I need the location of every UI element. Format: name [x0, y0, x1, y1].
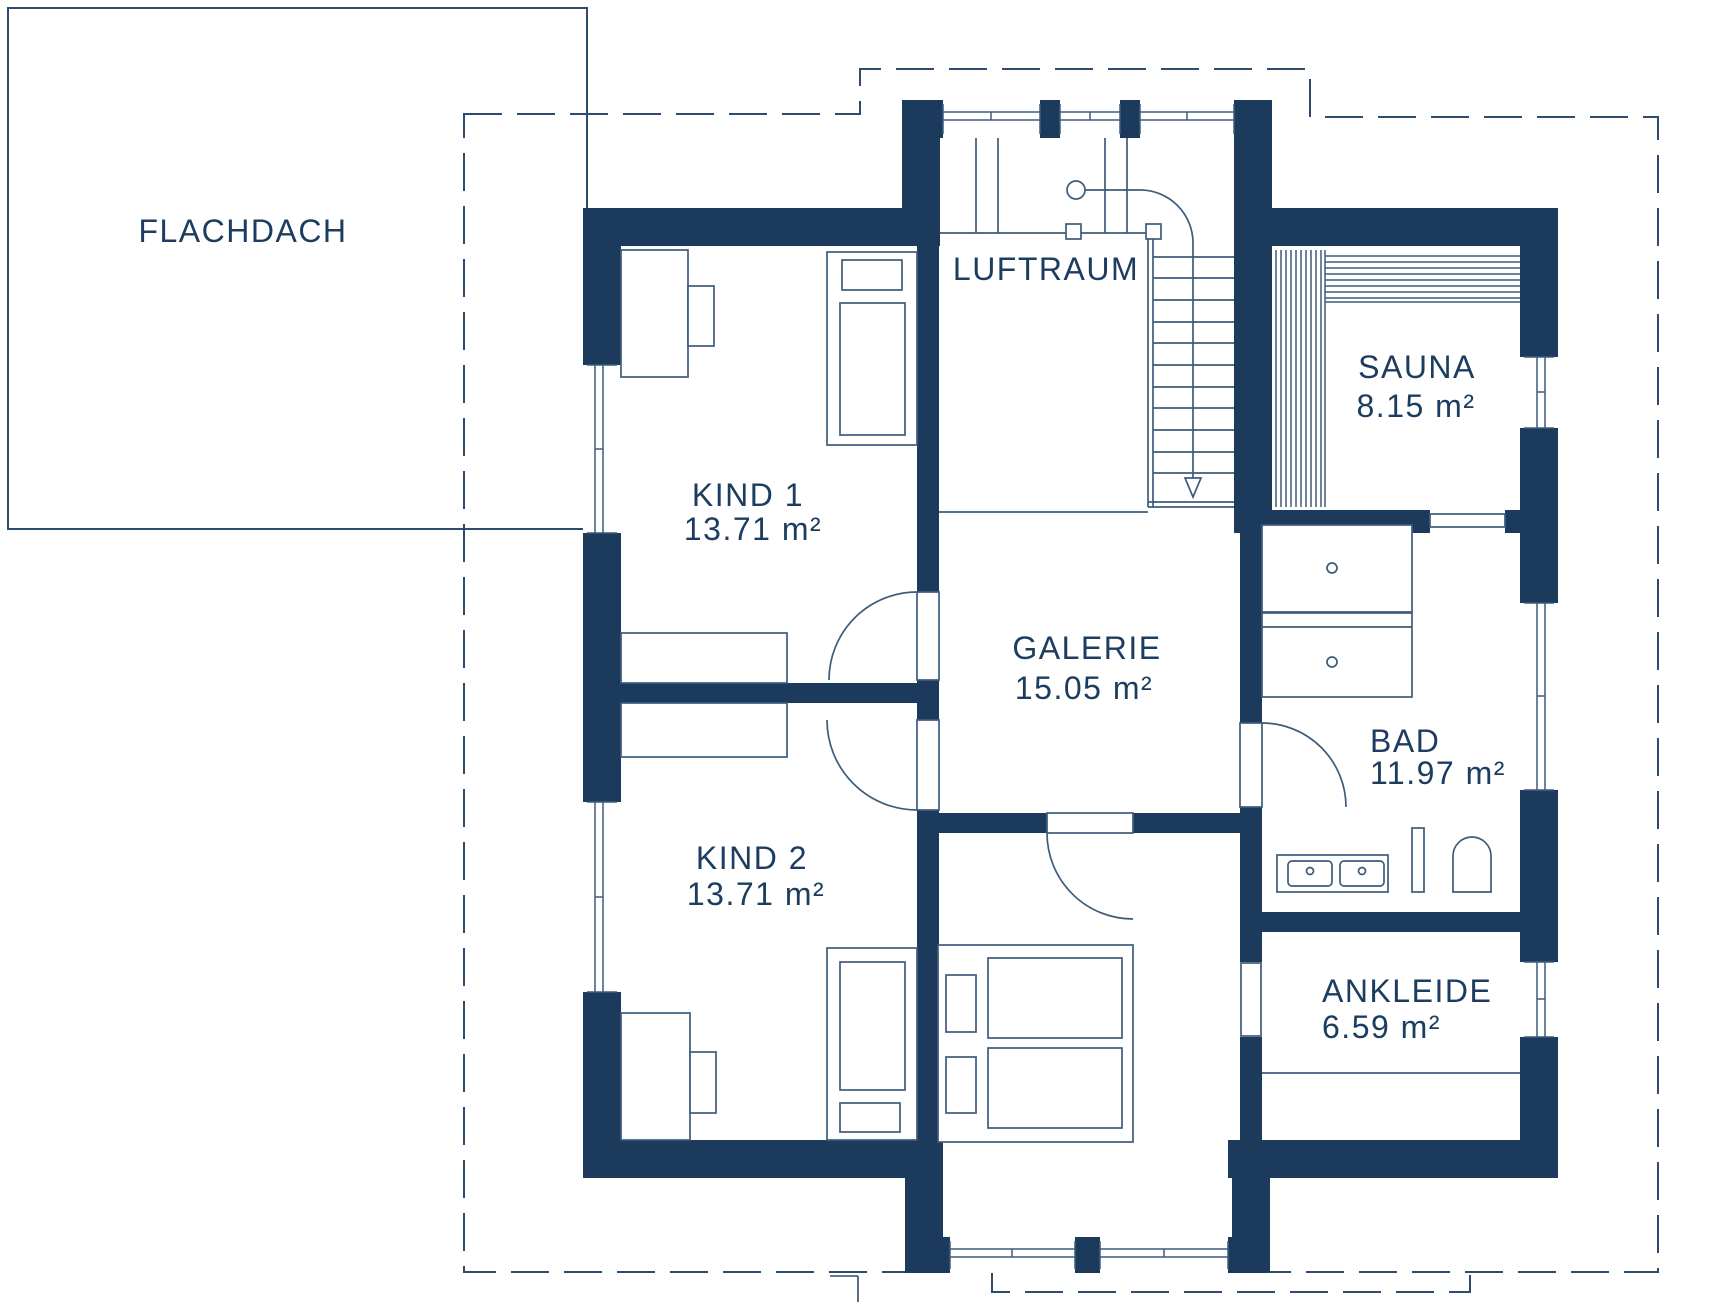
kind1-chair: [688, 286, 714, 346]
window-sauna: [1520, 357, 1558, 428]
stair-newel-post-left: [1066, 224, 1081, 239]
stair-newel-post-right: [1146, 224, 1161, 239]
kind1-bed-mattress: [840, 303, 905, 435]
room-area-galerie: 15.05 m²: [1015, 670, 1153, 706]
kind1-desk: [621, 250, 688, 377]
wall-north-east: [1272, 208, 1558, 246]
window-north-2: [1060, 100, 1120, 138]
wall-south-east: [1228, 1140, 1558, 1178]
bedroom-nightstand-2: [946, 1057, 976, 1113]
door-bedroom: [1047, 813, 1133, 919]
room-label-kind2: KIND 2: [696, 840, 808, 876]
kind1-bed-pillow: [842, 260, 902, 290]
kind2-chair: [690, 1052, 716, 1113]
room-label-kind1: KIND 1: [692, 477, 804, 513]
door-sauna: [1430, 510, 1505, 533]
bathroom-fixtures: [1262, 525, 1491, 892]
door-kind2: [827, 720, 939, 810]
door-bad: [1240, 723, 1346, 807]
wall-stair-sauna: [1234, 100, 1272, 533]
wall-north-west: [583, 208, 940, 246]
window-bay-1: [950, 1237, 1075, 1273]
door-kind1: [829, 592, 939, 680]
furniture-kind1: [621, 250, 917, 445]
kind2-nightstand: [840, 1103, 900, 1132]
wall-bad-west: [1240, 510, 1262, 1140]
bad-cabinet-2: [1262, 613, 1412, 697]
stair-newel-circle: [1067, 181, 1085, 199]
kind2-desk: [621, 1013, 690, 1140]
flachdach-outline: [8, 8, 587, 529]
bedroom-mattress-1: [988, 958, 1122, 1038]
room-label-ankleide: ANKLEIDE: [1322, 973, 1492, 1009]
wall-west: [583, 208, 621, 1178]
room-area-kind1: 13.71 m²: [684, 511, 822, 547]
room-label-flachdach: FLACHDACH: [138, 213, 347, 249]
bedroom-mattress-2: [988, 1048, 1122, 1128]
floor-plan-drawing: FLACHDACH LUFTRAUM KIND 1 13.71 m² KIND …: [0, 0, 1720, 1305]
wall-bad-ankleide: [1262, 912, 1520, 932]
wall-kind-divider: [621, 683, 917, 703]
room-area-ankleide: 6.59 m²: [1322, 1009, 1441, 1045]
window-kind1: [583, 365, 621, 533]
bad-vanity-double-sink: [1277, 855, 1388, 892]
room-label-luftraum: LUFTRAUM: [953, 251, 1139, 287]
window-ankleide: [1520, 962, 1558, 1037]
kind2-shelf-upper: [621, 633, 787, 683]
window-kind2: [583, 802, 621, 992]
opening-ankleide: [1240, 962, 1262, 1037]
bedroom-nightstand-1: [946, 975, 976, 1032]
staircase: [940, 138, 1234, 507]
room-area-kind2: 13.71 m²: [687, 876, 825, 912]
window-bad: [1520, 603, 1558, 790]
wall-center-vertical: [917, 246, 939, 1140]
kind2-shelf-lower: [621, 703, 787, 757]
window-north-1: [943, 100, 1040, 138]
floor-plan-page: FLACHDACH LUFTRAUM KIND 1 13.71 m² KIND …: [0, 0, 1720, 1305]
bad-shower-partition: [1412, 828, 1424, 892]
room-label-sauna: SAUNA: [1358, 349, 1476, 385]
bad-cabinet-1: [1262, 525, 1412, 612]
wall-south-west: [583, 1140, 943, 1178]
window-bay-2: [1100, 1237, 1228, 1273]
furniture-bedroom: [938, 945, 1133, 1142]
room-area-sauna: 8.15 m²: [1357, 388, 1476, 424]
window-north-3: [1140, 100, 1234, 138]
room-label-bad: BAD: [1370, 723, 1440, 759]
bad-toilet: [1453, 837, 1491, 892]
room-area-bad: 11.97 m²: [1370, 755, 1506, 791]
kind2-bed-mattress: [840, 962, 905, 1090]
stair-direction-arrow: [1185, 478, 1201, 497]
room-label-galerie: GALERIE: [1012, 630, 1161, 666]
